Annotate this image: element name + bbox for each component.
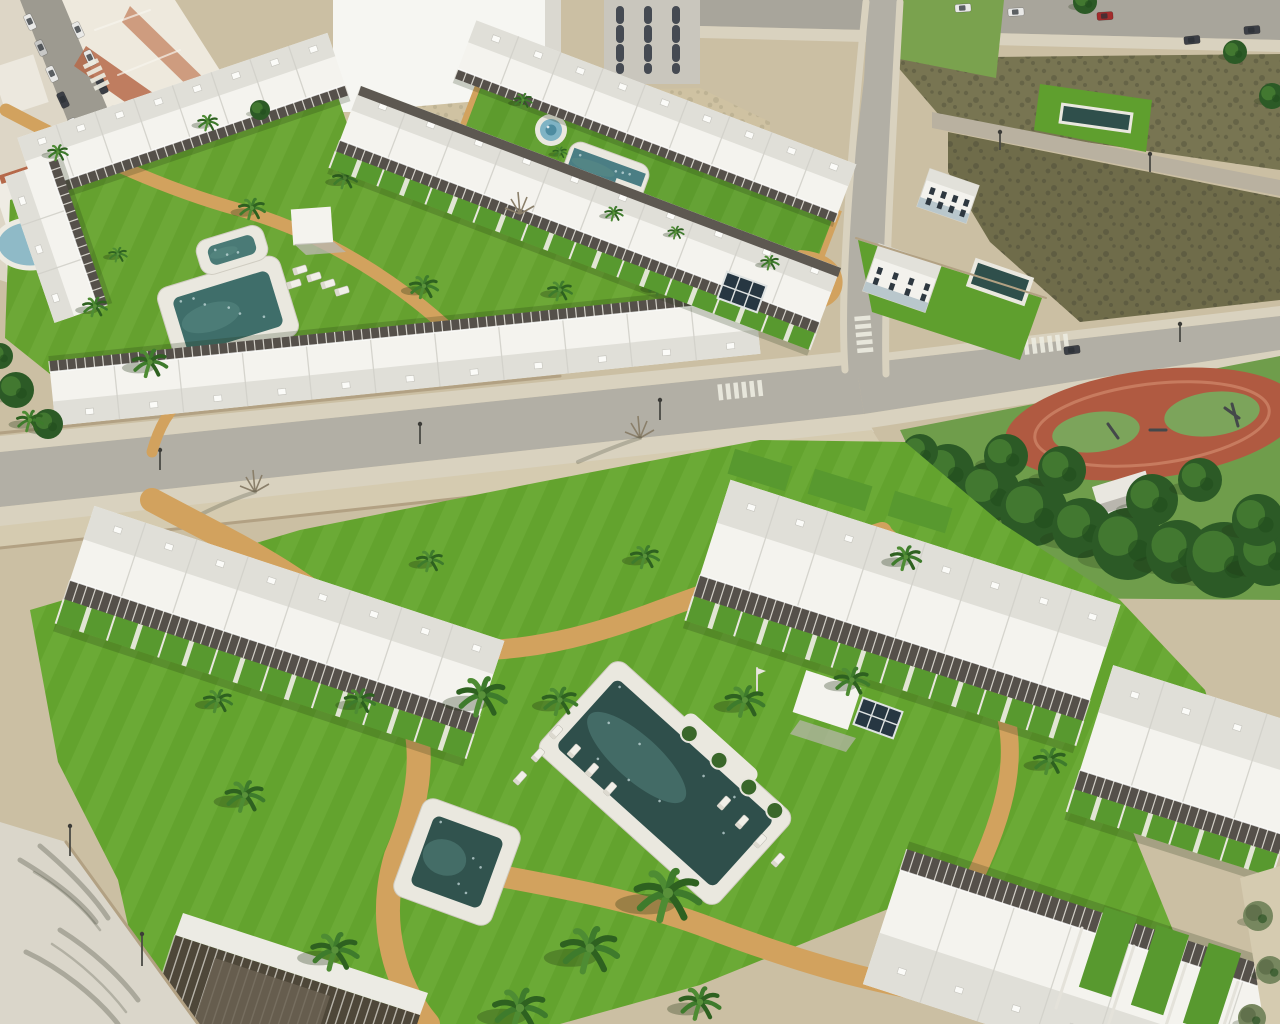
aerial-development-render (0, 0, 1280, 1024)
screenshot-root (0, 0, 1280, 1024)
scene-layers (0, 0, 1280, 1024)
roads-cars-13 (1064, 345, 1081, 355)
pool-house-cube (291, 207, 333, 246)
